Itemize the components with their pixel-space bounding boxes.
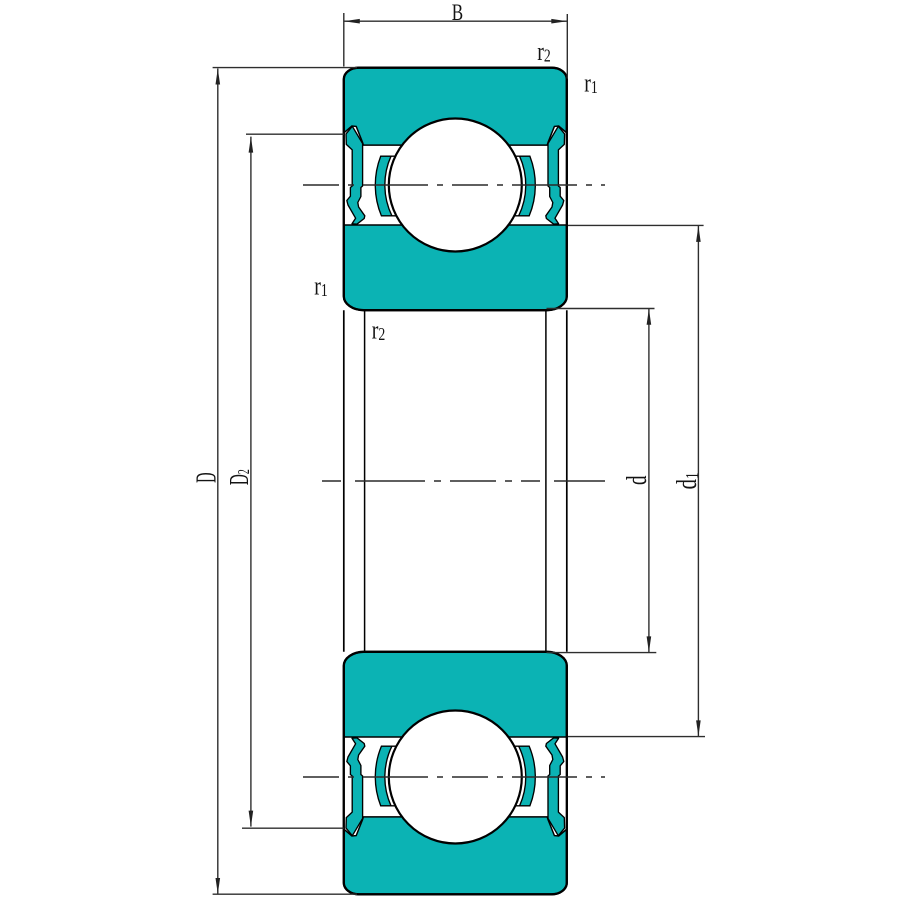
svg-text:B: B	[452, 0, 463, 25]
svg-text:D: D	[191, 472, 222, 483]
svg-text:d: d	[622, 475, 653, 485]
